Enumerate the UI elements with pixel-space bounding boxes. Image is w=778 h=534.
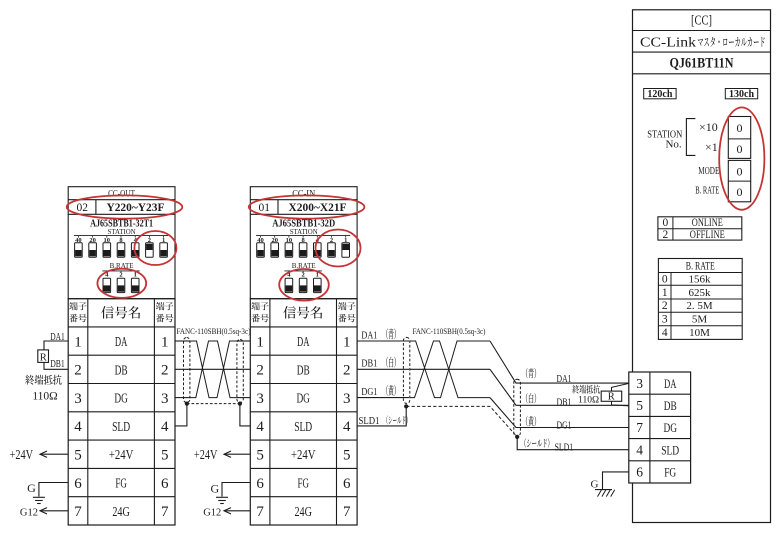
svg-text:5: 5	[343, 447, 351, 463]
svg-text:FANC-110SBH(0.5sq-3c): FANC-110SBH(0.5sq-3c)	[413, 327, 486, 336]
svg-text:6: 6	[343, 476, 351, 492]
svg-text:B. RATE: B. RATE	[695, 184, 719, 196]
svg-text:110Ω: 110Ω	[32, 391, 57, 403]
svg-text:1: 1	[256, 334, 264, 350]
svg-text:0: 0	[737, 121, 743, 135]
svg-text:110Ω: 110Ω	[578, 395, 599, 405]
svg-text:156k: 156k	[689, 273, 712, 285]
svg-text:7: 7	[74, 504, 82, 520]
svg-text:G: G	[27, 481, 36, 495]
svg-text:B. RATE: B. RATE	[686, 260, 715, 272]
svg-text:DG1: DG1	[361, 386, 377, 398]
svg-text:01: 01	[259, 202, 271, 214]
svg-text:4: 4	[74, 419, 82, 435]
svg-text:24G: 24G	[294, 505, 312, 520]
svg-text:×10: ×10	[699, 120, 718, 134]
svg-text:DB: DB	[297, 363, 310, 378]
svg-text:1: 1	[134, 272, 137, 279]
svg-text:7: 7	[256, 504, 264, 520]
svg-text:STATION: STATION	[108, 227, 137, 236]
svg-text:3: 3	[636, 376, 643, 391]
svg-text:DG: DG	[663, 420, 677, 435]
svg-text:FG: FG	[115, 476, 127, 491]
svg-text:2: 2	[663, 229, 669, 241]
svg-text:SLD1: SLD1	[555, 441, 574, 453]
svg-text:OFFLINE: OFFLINE	[690, 229, 725, 241]
svg-text:0: 0	[662, 273, 668, 285]
svg-text:3: 3	[256, 391, 264, 407]
svg-text:5: 5	[256, 447, 264, 463]
svg-text:Y220~Y23F: Y220~Y23F	[106, 202, 164, 214]
svg-text:130ch: 130ch	[729, 89, 754, 100]
svg-text:[CC]: [CC]	[691, 12, 712, 27]
svg-text:0: 0	[663, 217, 669, 229]
svg-text:2. 5M: 2. 5M	[686, 300, 713, 312]
svg-text:FG: FG	[297, 476, 309, 491]
svg-text:4: 4	[256, 419, 264, 435]
svg-text:R: R	[608, 392, 615, 403]
svg-text:G: G	[210, 482, 219, 496]
svg-text:SLD: SLD	[294, 420, 312, 435]
svg-text:G: G	[591, 479, 599, 491]
svg-text:5: 5	[636, 398, 643, 413]
svg-text:DG: DG	[114, 392, 128, 407]
svg-text:DG1: DG1	[557, 419, 572, 431]
svg-text:G12: G12	[203, 507, 221, 518]
svg-text:R: R	[40, 352, 47, 363]
svg-text:1: 1	[662, 287, 668, 299]
svg-text:FANC-110SBH(0.5sq-3c): FANC-110SBH(0.5sq-3c)	[177, 327, 251, 336]
svg-text:3: 3	[343, 391, 351, 407]
svg-text:2: 2	[161, 363, 169, 379]
svg-text:0: 0	[737, 142, 743, 156]
svg-text:7: 7	[343, 504, 351, 520]
svg-text:+24V: +24V	[10, 448, 34, 463]
svg-text:1: 1	[343, 334, 351, 350]
svg-text:2: 2	[256, 363, 264, 379]
svg-text:3: 3	[74, 391, 82, 407]
svg-text:DA1: DA1	[557, 373, 572, 385]
svg-text:+24V: +24V	[291, 448, 316, 463]
svg-text:6: 6	[74, 476, 82, 492]
svg-text:4: 4	[662, 327, 668, 339]
svg-text:1: 1	[74, 334, 82, 350]
svg-text:MODE: MODE	[698, 165, 719, 177]
svg-text:10M: 10M	[689, 327, 710, 339]
svg-text:DB: DB	[115, 363, 128, 378]
svg-text:1: 1	[161, 334, 169, 350]
svg-text:SLD: SLD	[661, 442, 679, 457]
svg-text:2: 2	[662, 300, 668, 312]
svg-text:2: 2	[74, 363, 82, 379]
svg-text:DB1: DB1	[361, 358, 377, 370]
svg-text:CC-Link: CC-Link	[640, 34, 696, 49]
svg-text:QJ61BT11N: QJ61BT11N	[670, 55, 734, 71]
svg-text:DB: DB	[664, 398, 677, 413]
svg-text:6: 6	[161, 476, 169, 492]
svg-text:ONLINE: ONLINE	[692, 217, 723, 229]
svg-text:2: 2	[343, 363, 351, 379]
svg-text:G12: G12	[20, 507, 38, 518]
svg-text:2: 2	[301, 272, 304, 279]
svg-text:4: 4	[161, 419, 169, 435]
svg-text:3: 3	[662, 313, 668, 325]
svg-text:No.: No.	[665, 139, 681, 151]
svg-text:02: 02	[76, 202, 88, 214]
svg-text:2: 2	[119, 272, 122, 279]
svg-text:DG: DG	[296, 392, 310, 407]
svg-text:DA: DA	[297, 335, 310, 350]
svg-text:7: 7	[636, 420, 643, 435]
svg-text:5M: 5M	[692, 313, 708, 325]
svg-text:DA1: DA1	[361, 329, 377, 341]
svg-text:+24V: +24V	[109, 448, 134, 463]
svg-text:4: 4	[636, 442, 643, 457]
svg-text:5: 5	[74, 447, 82, 463]
svg-text:7: 7	[161, 504, 169, 520]
svg-text:0: 0	[737, 165, 743, 179]
svg-text:3: 3	[161, 391, 169, 407]
svg-text:5: 5	[161, 447, 169, 463]
svg-text:4: 4	[343, 419, 351, 435]
svg-text:6: 6	[256, 476, 264, 492]
svg-text:DA: DA	[115, 335, 128, 350]
svg-text:DA: DA	[664, 376, 677, 391]
svg-text:FG: FG	[664, 465, 676, 480]
svg-text:+24V: +24V	[194, 448, 218, 463]
svg-text:SLD: SLD	[112, 420, 130, 435]
svg-text:0: 0	[737, 185, 743, 199]
svg-text:625k: 625k	[689, 287, 712, 299]
svg-text:DB1: DB1	[557, 396, 572, 408]
svg-text:24G: 24G	[112, 505, 130, 520]
svg-text:STATION: STATION	[290, 227, 319, 236]
svg-text:SLD1: SLD1	[359, 415, 380, 427]
svg-text:×1: ×1	[705, 140, 718, 154]
svg-text:X200~X21F: X200~X21F	[289, 202, 347, 214]
svg-text:6: 6	[636, 465, 643, 480]
svg-text:DB1: DB1	[50, 358, 64, 370]
svg-text:120ch: 120ch	[647, 89, 672, 100]
